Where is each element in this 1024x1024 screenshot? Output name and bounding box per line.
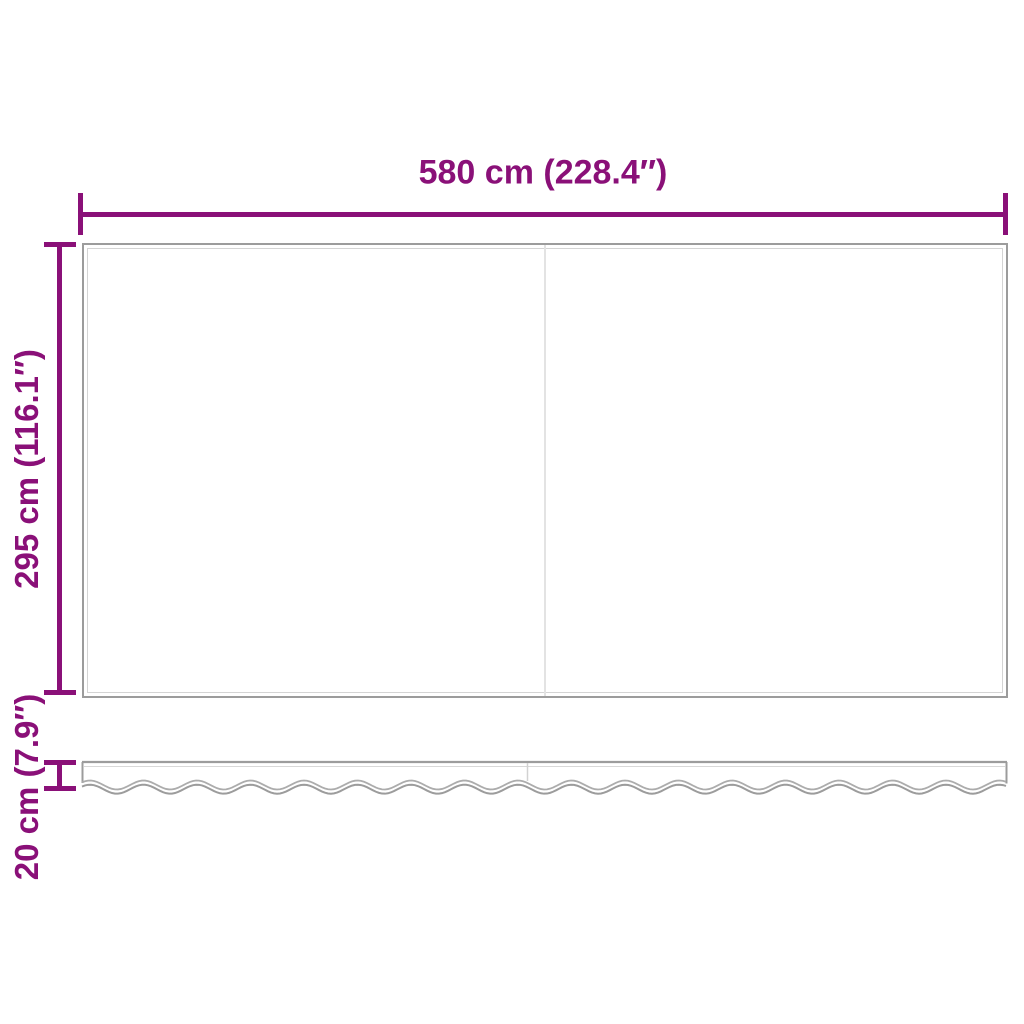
valance-dimension-tick-bottom	[44, 786, 76, 791]
width-dimension-tick-left	[78, 193, 83, 235]
height-dimension-tick-top	[44, 242, 76, 247]
width-dimension-tick-right	[1003, 193, 1008, 235]
valance-dimension-tick-top	[44, 760, 76, 765]
fabric-center-seam	[544, 245, 546, 696]
height-dimension-line	[57, 245, 62, 693]
valance-strip	[80, 760, 1009, 808]
width-dimension-line	[80, 212, 1006, 217]
height-dimension-label: 295 cm (116.1″)	[8, 349, 46, 589]
valance-dimension-line	[57, 764, 62, 788]
height-dimension-tick-bottom	[44, 690, 76, 695]
dimension-diagram: 580 cm (228.4″) 295 cm (116.1″) 20 cm (7…	[0, 0, 1024, 1024]
valance-dimension-label: 20 cm (7.9″)	[8, 694, 46, 880]
valance-wave-hem	[82, 781, 1006, 790]
fabric-panel	[82, 243, 1008, 698]
width-dimension-label: 580 cm (228.4″)	[419, 154, 668, 193]
